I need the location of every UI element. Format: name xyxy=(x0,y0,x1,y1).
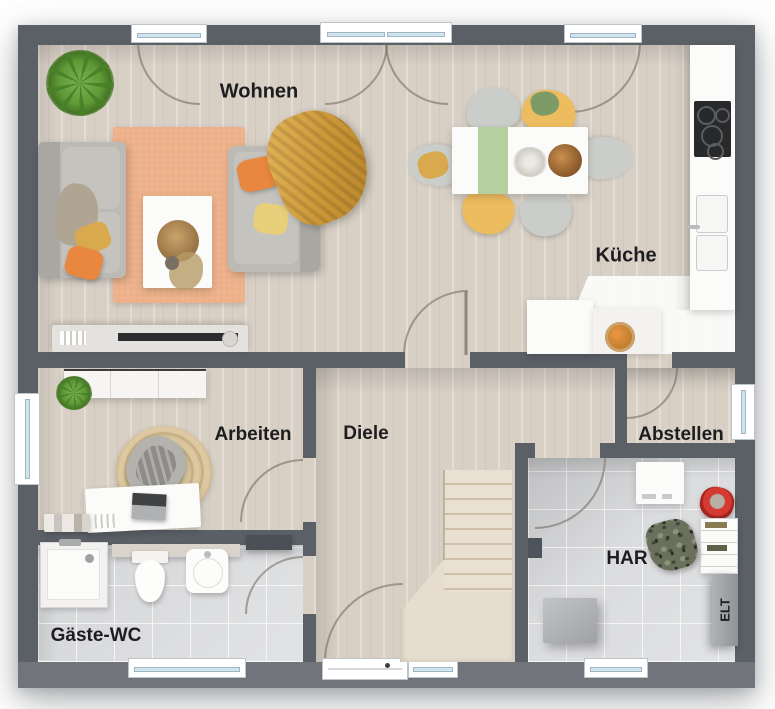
fruit-bowl xyxy=(605,322,635,352)
wash-basin xyxy=(186,549,228,593)
wall-har-left xyxy=(515,458,528,662)
window-bottom-har xyxy=(584,658,648,678)
window-glass xyxy=(741,390,746,434)
coffee-table xyxy=(143,196,212,288)
window-glass xyxy=(134,667,240,672)
table-runner xyxy=(478,127,508,194)
vase xyxy=(165,256,179,270)
throw-mustard xyxy=(415,149,451,182)
window-bottom-wc xyxy=(128,658,246,678)
wall-mid-vertical-a xyxy=(303,368,316,458)
door-handle xyxy=(385,663,390,668)
tv xyxy=(118,333,238,341)
wall-mid-vertical-b xyxy=(303,522,316,556)
book-stack xyxy=(44,514,90,532)
wall-main-left xyxy=(38,352,405,368)
books xyxy=(90,514,115,529)
double-terrace-door xyxy=(320,22,452,43)
door-threshold xyxy=(328,668,402,670)
faucet xyxy=(688,225,700,229)
room-label-arbeiten: Arbeiten xyxy=(214,424,291,446)
window-top-kitchen xyxy=(564,24,642,43)
floor-plan: Wohnen Küche Arbeiten Diele Abstellen HA… xyxy=(0,0,775,709)
decor-bowl xyxy=(548,144,582,177)
door-glass xyxy=(387,32,445,37)
wall-har-top-a xyxy=(515,443,535,458)
shower-faucet xyxy=(59,539,81,546)
shelf-item xyxy=(705,522,727,528)
pillow-yellow xyxy=(252,202,290,236)
boiler-vent xyxy=(642,494,656,499)
room-label-wohnen: Wohnen xyxy=(220,81,299,104)
window-glass xyxy=(590,667,642,672)
books xyxy=(60,331,86,345)
burner xyxy=(707,143,724,160)
faucet xyxy=(204,551,211,558)
plant-office xyxy=(56,376,92,410)
kitchen-low-counter xyxy=(593,308,661,354)
napkin-green xyxy=(529,89,561,118)
tv-sideboard xyxy=(52,325,248,352)
burner xyxy=(697,106,716,125)
heat-pump xyxy=(543,598,597,643)
burner xyxy=(715,108,730,123)
wall-niche xyxy=(528,538,542,558)
room-label-diele: Diele xyxy=(343,423,388,445)
wall-abstellen-left xyxy=(615,368,627,446)
plant-living xyxy=(46,50,114,116)
room-label-har: HAR xyxy=(606,548,647,570)
window-top-living xyxy=(131,24,207,43)
sink-basin xyxy=(696,235,728,271)
wc-wall-shelf xyxy=(246,535,292,550)
wall-mid-vertical-c xyxy=(303,614,316,662)
stair-treads xyxy=(444,470,512,592)
dining-table xyxy=(452,127,588,194)
toilet xyxy=(132,551,168,603)
shower-drain xyxy=(85,554,94,563)
laptop xyxy=(131,493,166,521)
window-glass xyxy=(137,33,201,38)
basin-bowl xyxy=(193,558,223,588)
window-glass xyxy=(413,667,453,672)
toilet-bowl xyxy=(135,560,165,602)
window-left-office xyxy=(14,393,40,485)
window-glass xyxy=(570,33,636,38)
window-right-storage xyxy=(731,384,755,440)
room-label-elt: ELT xyxy=(718,598,733,622)
room-label-abstellen: Abstellen xyxy=(638,424,724,446)
window-glass xyxy=(25,399,30,479)
wall-main-right xyxy=(470,352,627,368)
sink-basin xyxy=(696,195,728,233)
boiler xyxy=(636,462,684,504)
boiler-vent xyxy=(662,494,672,499)
door-glass xyxy=(327,32,385,37)
room-label-gaeste-wc: Gäste-WC xyxy=(51,625,142,647)
kitchen-counter xyxy=(690,45,735,310)
front-door xyxy=(322,658,408,680)
cooktop xyxy=(694,101,731,157)
storage-shelf xyxy=(700,518,738,574)
sofa xyxy=(38,142,126,278)
laptop-screen xyxy=(132,493,167,507)
decor-object xyxy=(222,331,238,347)
desk xyxy=(85,483,201,533)
shower xyxy=(40,542,108,608)
kitchen-cabinet xyxy=(527,300,593,354)
flower-bouquet xyxy=(512,147,548,177)
shelf-item xyxy=(707,545,727,551)
room-label-kueche: Küche xyxy=(595,245,656,268)
wall-main-right2 xyxy=(672,352,735,368)
kitchen-sink xyxy=(694,193,730,273)
